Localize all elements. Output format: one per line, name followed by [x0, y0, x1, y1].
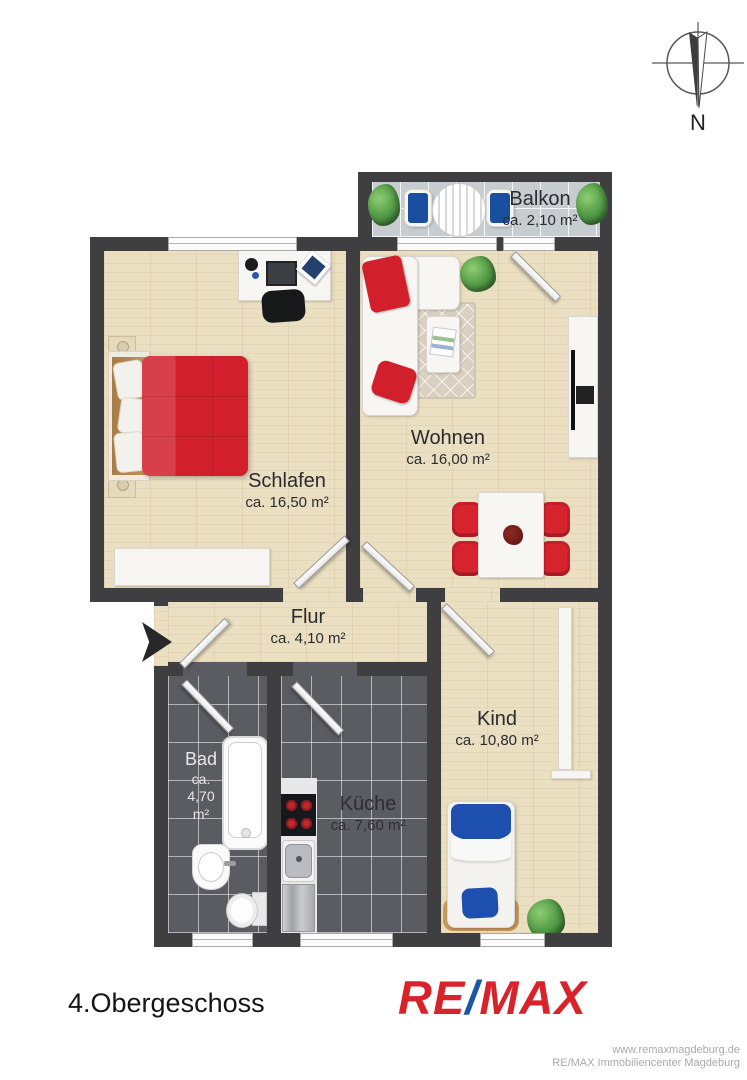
logo-re: RE: [398, 971, 465, 1024]
kitchen-cabinet: [282, 884, 315, 932]
floor-plan: N Balkon ca. 2,10 m²: [0, 0, 747, 1080]
dining-chair: [540, 502, 570, 537]
kid-pillow: [451, 804, 511, 841]
room-name: Wohnen: [406, 427, 489, 451]
window: [480, 933, 545, 947]
wall-segment: [267, 676, 281, 933]
stove-burner: [286, 818, 297, 829]
plant: [460, 256, 496, 292]
monitor: [266, 261, 297, 286]
sink-faucet: [224, 861, 236, 866]
logo-slash: /: [465, 971, 479, 1024]
sideboard: [114, 548, 270, 586]
room-name: Balkon: [502, 188, 577, 212]
wall-segment: [346, 251, 360, 602]
doorway: [445, 588, 500, 602]
footer-company: RE/MAX Immobiliencenter Magdeburg: [552, 1057, 740, 1070]
room-area: ca.: [185, 771, 217, 789]
dining-chair: [540, 541, 570, 576]
shelf: [558, 607, 572, 770]
room-label-balkon: Balkon ca. 2,10 m²: [502, 188, 577, 229]
wall-segment: [90, 237, 104, 602]
toilet: [226, 893, 258, 928]
kid-cushion: [461, 887, 499, 919]
wall-segment: [358, 172, 612, 182]
plant: [368, 184, 400, 226]
tv: [571, 350, 575, 430]
room-label-wohnen: Wohnen ca. 16,00 m²: [406, 427, 489, 468]
room-name: Bad: [185, 748, 217, 771]
floor-level-label: 4.Obergeschoss: [68, 988, 265, 1019]
room-area: ca. 7,60 m²: [330, 817, 405, 835]
wall-segment: [154, 666, 168, 947]
doorway: [293, 662, 357, 676]
plant: [576, 183, 608, 225]
window: [168, 237, 297, 251]
wall-segment: [154, 602, 168, 606]
wall-segment: [500, 588, 612, 602]
remax-logo: RE/MAX: [398, 972, 587, 1024]
kitchen-faucet: [296, 856, 302, 862]
tv-stand: [576, 386, 594, 404]
svg-text:N: N: [690, 110, 706, 135]
bathtub-inner: [228, 742, 262, 838]
balcony-door-sill: [397, 237, 497, 251]
bathtub-drain: [241, 828, 251, 838]
wall-segment: [247, 662, 293, 676]
shelf-end: [551, 770, 591, 779]
room-label-kueche: Küche ca. 7,60 m²: [330, 793, 405, 834]
room-label-bad: Bad ca. 4,70 m²: [185, 748, 217, 823]
desk-lamp: [245, 258, 258, 271]
room-label-flur: Flur ca. 4,10 m²: [270, 606, 345, 647]
stove-burner: [301, 800, 312, 811]
stove-burner: [301, 818, 312, 829]
desk-lamp-base: [252, 272, 259, 279]
room-area: ca. 10,80 m²: [455, 732, 538, 750]
room-name: Schlafen: [245, 470, 328, 494]
balcony-table: [432, 183, 486, 237]
table-centerpiece: [503, 525, 523, 545]
window: [503, 237, 555, 251]
room-area: 4,70: [185, 788, 217, 806]
room-name: Kind: [455, 708, 538, 732]
room-name: Flur: [270, 606, 345, 630]
wall-segment: [90, 588, 283, 602]
logo-max: MAX: [479, 971, 586, 1024]
wall-segment: [427, 602, 441, 933]
doorway: [283, 588, 347, 602]
wall-segment: [416, 588, 445, 602]
stove-burner: [286, 800, 297, 811]
desk-chair: [261, 289, 306, 324]
room-area: ca. 16,50 m²: [245, 494, 328, 512]
room-area: ca. 2,10 m²: [502, 212, 577, 230]
room-label-kind: Kind ca. 10,80 m²: [455, 708, 538, 749]
room-name: Küche: [330, 793, 405, 817]
balcony-chair-seat: [408, 193, 428, 223]
window: [192, 933, 253, 947]
compass-north-icon: N: [650, 8, 746, 136]
kid-duvet-fold: [451, 839, 511, 861]
stove: [280, 794, 316, 836]
room-label-schlafen: Schlafen ca. 16,50 m²: [245, 470, 328, 511]
room-area: ca. 4,10 m²: [270, 630, 345, 648]
doorway: [183, 662, 247, 676]
footer-credits: www.remaxmagdeburg.de RE/MAX Immobilienc…: [552, 1044, 740, 1070]
footer-website: www.remaxmagdeburg.de: [552, 1044, 740, 1057]
bed-duvet: [142, 356, 248, 476]
window: [300, 933, 393, 947]
wall-segment: [357, 662, 427, 676]
room-area: ca. 16,00 m²: [406, 451, 489, 469]
room-area: m²: [185, 806, 217, 824]
magazine: [429, 326, 457, 357]
sink-basin: [198, 852, 224, 882]
